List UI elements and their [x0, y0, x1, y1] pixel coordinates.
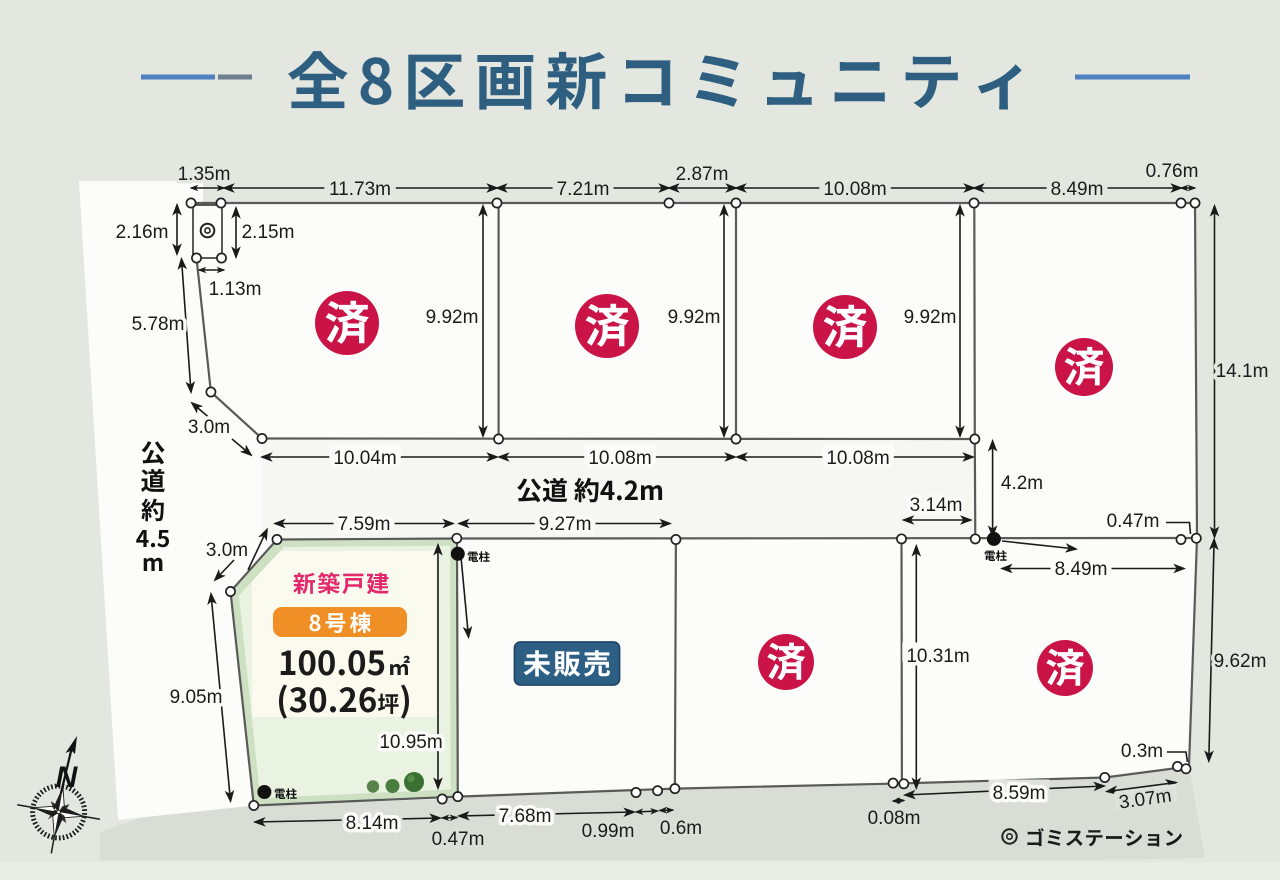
svg-text:3.14m: 3.14m	[910, 495, 963, 516]
svg-text:4.2m: 4.2m	[1001, 473, 1043, 494]
svg-text:2.87m: 2.87m	[676, 164, 729, 185]
svg-text:8.59m: 8.59m	[993, 783, 1046, 804]
svg-text:0.76m: 0.76m	[1146, 161, 1199, 182]
svg-text:14.1m: 14.1m	[1216, 361, 1269, 382]
svg-text:7.68m: 7.68m	[499, 806, 552, 827]
svg-text:10.08m: 10.08m	[588, 448, 651, 469]
svg-text:0.47m: 0.47m	[432, 829, 485, 850]
svg-text:10.04m: 10.04m	[333, 448, 396, 469]
svg-text:7.21m: 7.21m	[557, 179, 610, 200]
svg-text:11.73m: 11.73m	[329, 179, 391, 200]
svg-text:10.08m: 10.08m	[823, 179, 886, 200]
svg-text:5.78m: 5.78m	[132, 314, 185, 335]
svg-text:8.49m: 8.49m	[1051, 179, 1104, 200]
svg-text:8.49m: 8.49m	[1055, 559, 1108, 580]
svg-text:10.95m: 10.95m	[379, 732, 442, 753]
svg-text:9.92m: 9.92m	[426, 307, 479, 328]
svg-text:N: N	[56, 761, 79, 794]
svg-text:9.62m: 9.62m	[1214, 651, 1267, 672]
svg-text:8.14m: 8.14m	[346, 813, 399, 834]
svg-text:1.13m: 1.13m	[209, 279, 262, 300]
svg-text:9.05m: 9.05m	[170, 687, 223, 708]
svg-text:10.31m: 10.31m	[906, 646, 969, 667]
svg-text:0.47m: 0.47m	[1107, 511, 1160, 532]
svg-text:7.59m: 7.59m	[338, 514, 391, 535]
svg-text:3.0m: 3.0m	[206, 540, 248, 561]
svg-text:0.99m: 0.99m	[582, 821, 635, 842]
svg-text:10.08m: 10.08m	[826, 448, 889, 469]
svg-text:2.15m: 2.15m	[242, 222, 295, 243]
svg-text:0.3m: 0.3m	[1121, 741, 1163, 762]
svg-text:9.27m: 9.27m	[539, 514, 592, 535]
svg-text:1.35m: 1.35m	[178, 164, 231, 185]
svg-text:9.92m: 9.92m	[668, 307, 721, 328]
svg-text:0.6m: 0.6m	[660, 818, 702, 839]
svg-text:3.0m: 3.0m	[188, 417, 230, 438]
svg-text:2.16m: 2.16m	[116, 222, 169, 243]
svg-text:0.08m: 0.08m	[868, 808, 921, 829]
svg-text:9.92m: 9.92m	[904, 307, 957, 328]
